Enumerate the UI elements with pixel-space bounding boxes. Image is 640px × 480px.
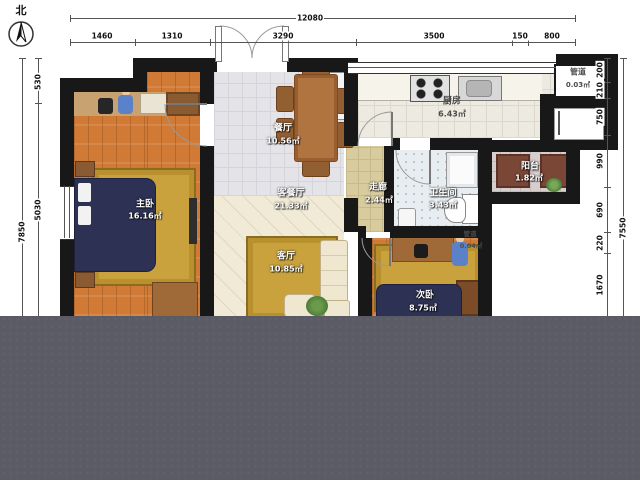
- dim-tick: [70, 15, 71, 22]
- dim-tick: [575, 15, 576, 22]
- dim-seg: 200: [596, 61, 605, 79]
- room-label-balcony: 阳台: [521, 159, 539, 172]
- room-area-living-dining: 21.33㎡: [274, 201, 307, 212]
- dim-seg: 1310: [161, 32, 184, 41]
- dim-seg: 800: [543, 32, 561, 41]
- dim-tick: [210, 39, 211, 46]
- room-label-dining: 餐厅: [274, 121, 292, 134]
- north-compass: 北: [6, 2, 36, 54]
- room-label-bathroom: 卫生间: [429, 186, 456, 199]
- room-label-master: 主卧: [136, 197, 154, 210]
- dim-seg: 3290: [272, 32, 295, 41]
- dim-seg: 990: [596, 152, 605, 170]
- dim-tick: [604, 232, 611, 233]
- dim-tick: [70, 39, 71, 46]
- floorplan-canvas: 厨房 6.43㎡ 餐厅 10.56㎡ 客餐厅 21.33㎡ 客厅 10.85㎡ …: [0, 0, 640, 480]
- room-area-dining: 10.56㎡: [266, 136, 299, 147]
- room-area-second-bedroom: 8.75㎡: [409, 303, 437, 314]
- dim-seg: 5030: [34, 199, 43, 222]
- dim-tick: [620, 58, 627, 59]
- area-pipe-duct-1: 0.03㎡: [566, 80, 590, 90]
- room-area-balcony: 1.82㎡: [515, 173, 543, 184]
- dim-seg: 1460: [91, 32, 114, 41]
- room-area-kitchen: 6.43㎡: [438, 109, 466, 120]
- dim-line-top-segments: [70, 42, 576, 43]
- dim-tick: [575, 39, 576, 46]
- dim-tick: [604, 135, 611, 136]
- dim-top-total: 12080: [296, 14, 324, 23]
- room-area-hallway: 2.44㎡: [365, 195, 393, 206]
- dim-seg: 220: [596, 234, 605, 252]
- area-pipe-duct-2: 0.04㎡: [460, 240, 483, 250]
- entry-door-leaf: [215, 26, 222, 62]
- dim-tick: [604, 253, 611, 254]
- room-label-second-bedroom: 次卧: [416, 288, 434, 301]
- dim-tick: [604, 187, 611, 188]
- dim-seg: 690: [596, 201, 605, 219]
- door-swing-arc: [362, 238, 390, 266]
- dim-tick: [356, 39, 357, 46]
- dim-tick: [35, 103, 42, 104]
- room-area-living: 10.85㎡: [269, 264, 302, 275]
- label-pipe-duct-1: 管道: [570, 67, 586, 78]
- room-area-bathroom: 3.43㎡: [429, 200, 457, 211]
- door-swing-arc: [358, 112, 392, 146]
- dim-tick: [35, 58, 42, 59]
- dim-seg: 3500: [423, 32, 446, 41]
- dim-tick: [135, 39, 136, 46]
- dim-tick: [604, 58, 611, 59]
- dim-seg: 530: [34, 73, 43, 91]
- dim-line-right-total: [623, 58, 624, 316]
- dim-seg: 1670: [596, 274, 605, 297]
- room-area-master: 16.16㎡: [128, 211, 161, 222]
- dim-line-left-segments: [38, 58, 39, 316]
- label-pipe-duct-2: 管道: [464, 228, 477, 238]
- north-label: 北: [6, 2, 36, 18]
- dim-seg: 210: [596, 81, 605, 99]
- dim-tick: [604, 98, 611, 99]
- room-label-hallway: 走廊: [369, 180, 387, 193]
- dim-tick: [604, 82, 611, 83]
- dim-line-left-total: [22, 58, 23, 316]
- dim-tick: [19, 58, 26, 59]
- door-swing-arc: [396, 150, 430, 184]
- room-label-living: 客厅: [277, 249, 295, 262]
- room-label-kitchen: 厨房: [443, 94, 461, 107]
- dim-right-total: 7550: [619, 217, 628, 240]
- dim-seg: 150: [511, 32, 529, 41]
- room-label-living-dining: 客餐厅: [277, 186, 304, 199]
- dim-left-total: 7850: [18, 221, 27, 244]
- dim-seg: 750: [596, 108, 605, 126]
- north-compass-icon: [6, 18, 36, 50]
- door-swing-arc: [165, 104, 207, 146]
- bottom-overlay: [0, 316, 640, 480]
